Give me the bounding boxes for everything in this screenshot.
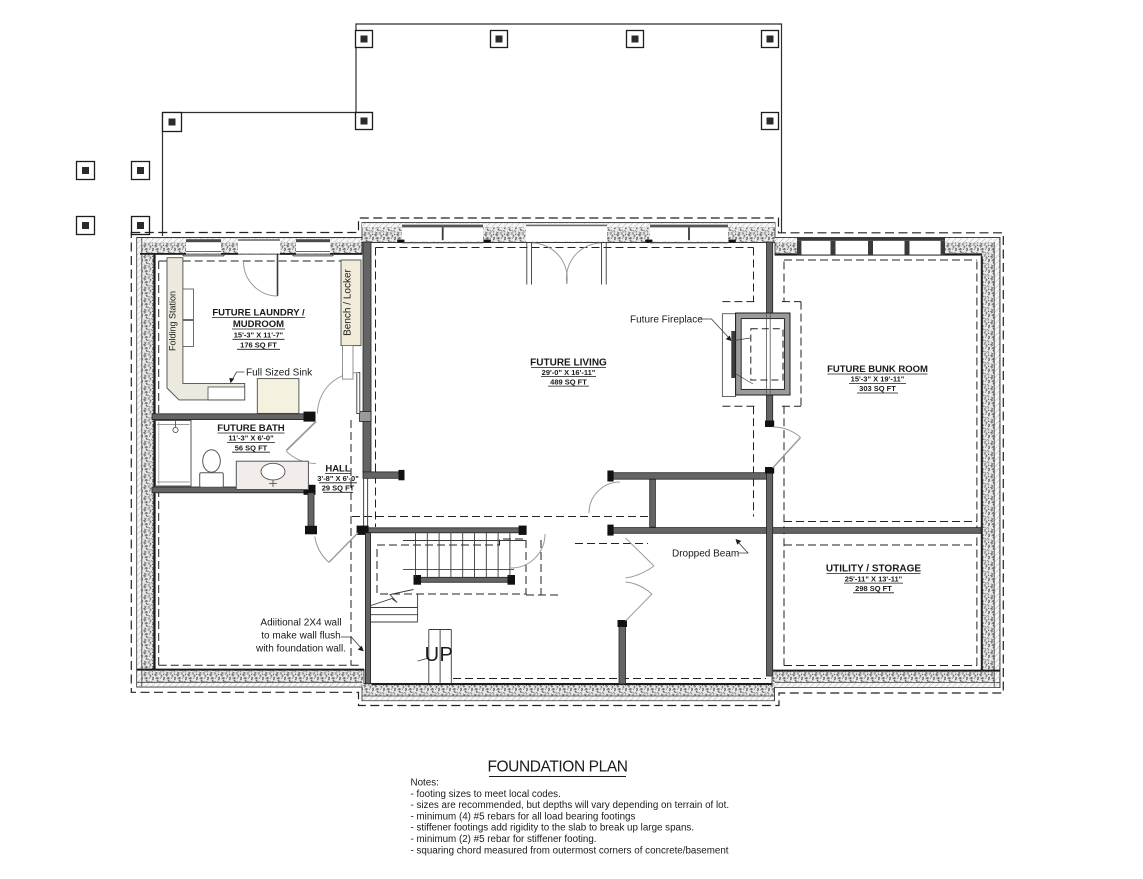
svg-text:UTILITY / STORAGE: UTILITY / STORAGE	[826, 564, 922, 575]
svg-text:489 SQ FT: 489 SQ FT	[550, 377, 587, 386]
svg-text:FUTURE BUNK ROOM: FUTURE BUNK ROOM	[827, 364, 928, 375]
svg-text:Dropped Beam: Dropped Beam	[672, 549, 739, 560]
svg-text:- sizes are recommended, but d: - sizes are recommended, but depths will…	[411, 800, 730, 811]
svg-text:Bench / Locker: Bench / Locker	[343, 268, 354, 335]
svg-text:FOUNDATION PLAN: FOUNDATION PLAN	[487, 759, 627, 776]
svg-text:FUTURE BATH: FUTURE BATH	[217, 423, 285, 434]
svg-text:Full Sized Sink: Full Sized Sink	[246, 368, 313, 379]
svg-text:Adiitional 2X4 wall: Adiitional 2X4 wall	[260, 618, 341, 629]
svg-text:with foundation wall.: with foundation wall.	[255, 644, 346, 655]
svg-text:176 SQ FT: 176 SQ FT	[240, 341, 277, 350]
svg-text:- squaring chord measured from: - squaring chord measured from outermost…	[411, 845, 729, 856]
svg-text:to make wall flush: to make wall flush	[261, 631, 340, 642]
svg-text:29 SQ FT: 29 SQ FT	[322, 484, 355, 493]
svg-text:Folding Station: Folding Station	[168, 291, 178, 351]
svg-text:- minimum (4) #5 rebars for al: - minimum (4) #5 rebars for all load bea…	[411, 811, 636, 822]
svg-text:- stiffener footings add rigid: - stiffener footings add rigidity to the…	[411, 823, 695, 834]
svg-text:Notes:: Notes:	[411, 778, 439, 789]
svg-text:HALL: HALL	[325, 464, 351, 475]
svg-text:- minimum (2) #5 rebar for sti: - minimum (2) #5 rebar for stiffener foo…	[411, 834, 597, 845]
svg-text:- footing sizes to meet local: - footing sizes to meet local codes.	[411, 789, 561, 800]
svg-text:MUDROOM: MUDROOM	[233, 319, 284, 330]
svg-text:FUTURE LAUNDRY /: FUTURE LAUNDRY /	[212, 308, 305, 319]
svg-text:UP: UP	[425, 644, 454, 666]
svg-text:11'-3" X 6'-0": 11'-3" X 6'-0"	[228, 434, 274, 443]
svg-text:56 SQ FT: 56 SQ FT	[235, 443, 268, 452]
svg-text:25'-11" X 13'-11": 25'-11" X 13'-11"	[845, 574, 903, 583]
svg-text:15'-3" X 11'-7": 15'-3" X 11'-7"	[234, 331, 284, 340]
svg-text:3'-8" X 6'-0": 3'-8" X 6'-0"	[317, 474, 359, 483]
svg-text:29'-0" X 16'-11": 29'-0" X 16'-11"	[542, 368, 596, 377]
svg-text:15'-3" X 19'-11": 15'-3" X 19'-11"	[851, 375, 905, 384]
svg-text:303 SQ FT: 303 SQ FT	[859, 384, 896, 393]
svg-text:Future Fireplace: Future Fireplace	[630, 315, 703, 326]
svg-text:298 SQ FT: 298 SQ FT	[855, 584, 892, 593]
